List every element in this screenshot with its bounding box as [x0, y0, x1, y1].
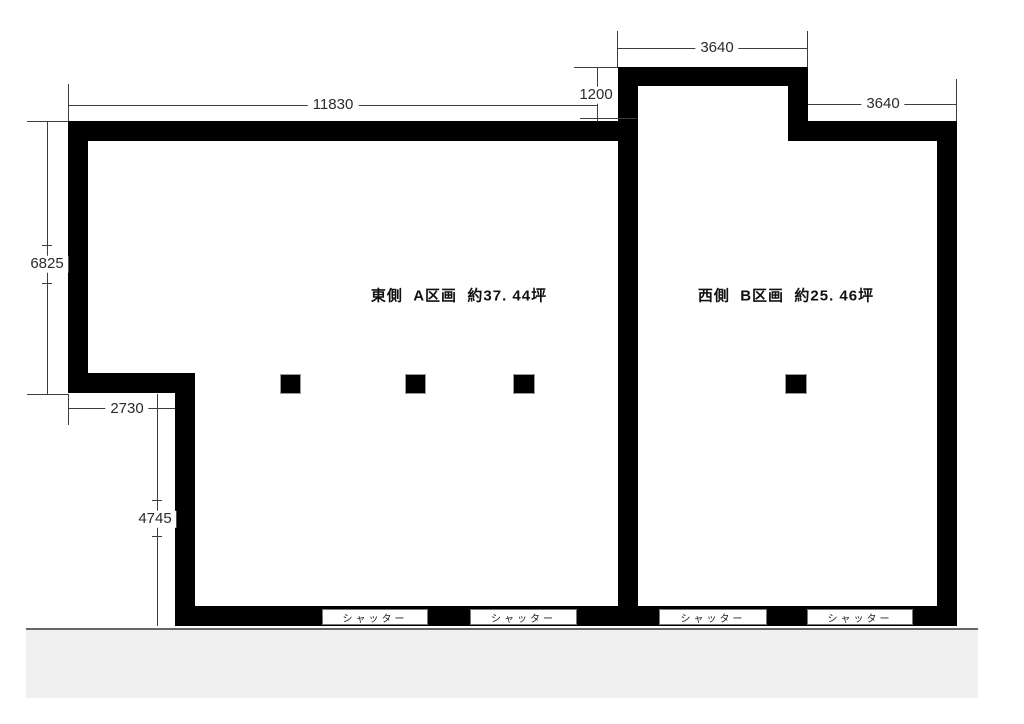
tick-protrusion-left — [617, 31, 618, 67]
dash-left-height-lower — [42, 283, 52, 284]
tick-top-left — [68, 84, 69, 121]
dash-lower-height-upper — [152, 500, 162, 501]
dim-label-notch: 1200 — [574, 87, 617, 104]
wall-left — [68, 121, 88, 393]
wall-right — [937, 121, 957, 626]
dim-label-protrusion-width: 3640 — [695, 40, 738, 57]
pillar — [280, 374, 301, 394]
floor-plan: 11830 1200 3640 3640 6825 2730 4745 東側 A… — [0, 0, 1024, 724]
dim-label-top-width: 11830 — [308, 97, 359, 114]
pillar — [513, 374, 535, 394]
tick-protrusion-right — [807, 31, 808, 67]
tick-right-end — [956, 79, 957, 121]
dim-label-lower-height: 4745 — [133, 511, 176, 528]
dim-label-jog-width: 2730 — [105, 401, 148, 418]
ext-line-notch-top — [574, 67, 618, 68]
dash-lower-height-lower — [152, 536, 162, 537]
dim-label-right-width: 3640 — [861, 96, 904, 113]
wall-protrusion-top — [618, 67, 808, 86]
dim-label-left-height: 6825 — [25, 256, 68, 273]
pillar — [405, 374, 426, 394]
ext-line-left-bottom — [27, 394, 68, 395]
shutter-door: シャッター — [659, 609, 767, 625]
wall-divider — [618, 67, 638, 626]
ext-line-notch-bottom — [580, 118, 637, 119]
room-b-label: 西側 B区画 約25. 46坪 — [698, 285, 874, 306]
pillar — [785, 374, 807, 394]
wall-jog — [68, 373, 195, 393]
shutter-door: シャッター — [807, 609, 913, 625]
shutter-door: シャッター — [470, 609, 577, 625]
shutter-door: シャッター — [322, 609, 428, 625]
wall-top-a — [68, 121, 638, 141]
dash-left-height-upper — [42, 245, 52, 246]
room-a-label: 東側 A区画 約37. 44坪 — [371, 285, 547, 306]
tick-jog-left — [68, 394, 69, 425]
road-area — [26, 628, 978, 698]
wall-lower-left — [175, 393, 195, 626]
wall-top-b — [788, 121, 957, 141]
